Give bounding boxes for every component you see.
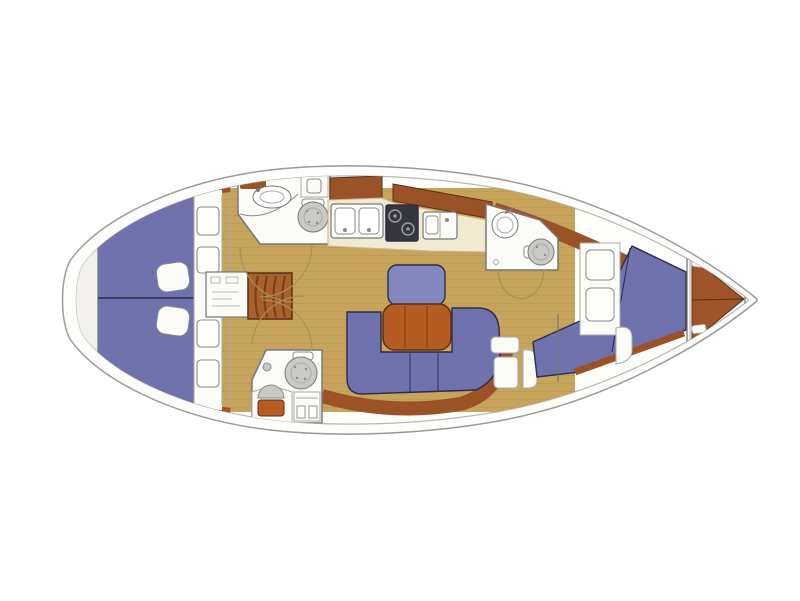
saloon-bench [388,265,445,305]
floor-plan-canvas [0,0,800,601]
forward-cabin-lockers [580,243,620,335]
galley-stove [386,205,418,241]
galley-sink [423,212,457,239]
aft-head-starboard [252,350,322,423]
aft-head-port [238,174,330,244]
bow [687,252,745,348]
shower-panel [301,175,328,197]
saloon-table [383,304,451,350]
head-counter [294,392,320,421]
toilet [298,199,328,232]
aft-berths [98,187,194,413]
sink [253,186,291,208]
vanity [252,385,292,423]
boat-floor-plan [0,0,800,601]
engine-compartment [206,272,248,317]
galley-twin-sinks [331,204,383,238]
